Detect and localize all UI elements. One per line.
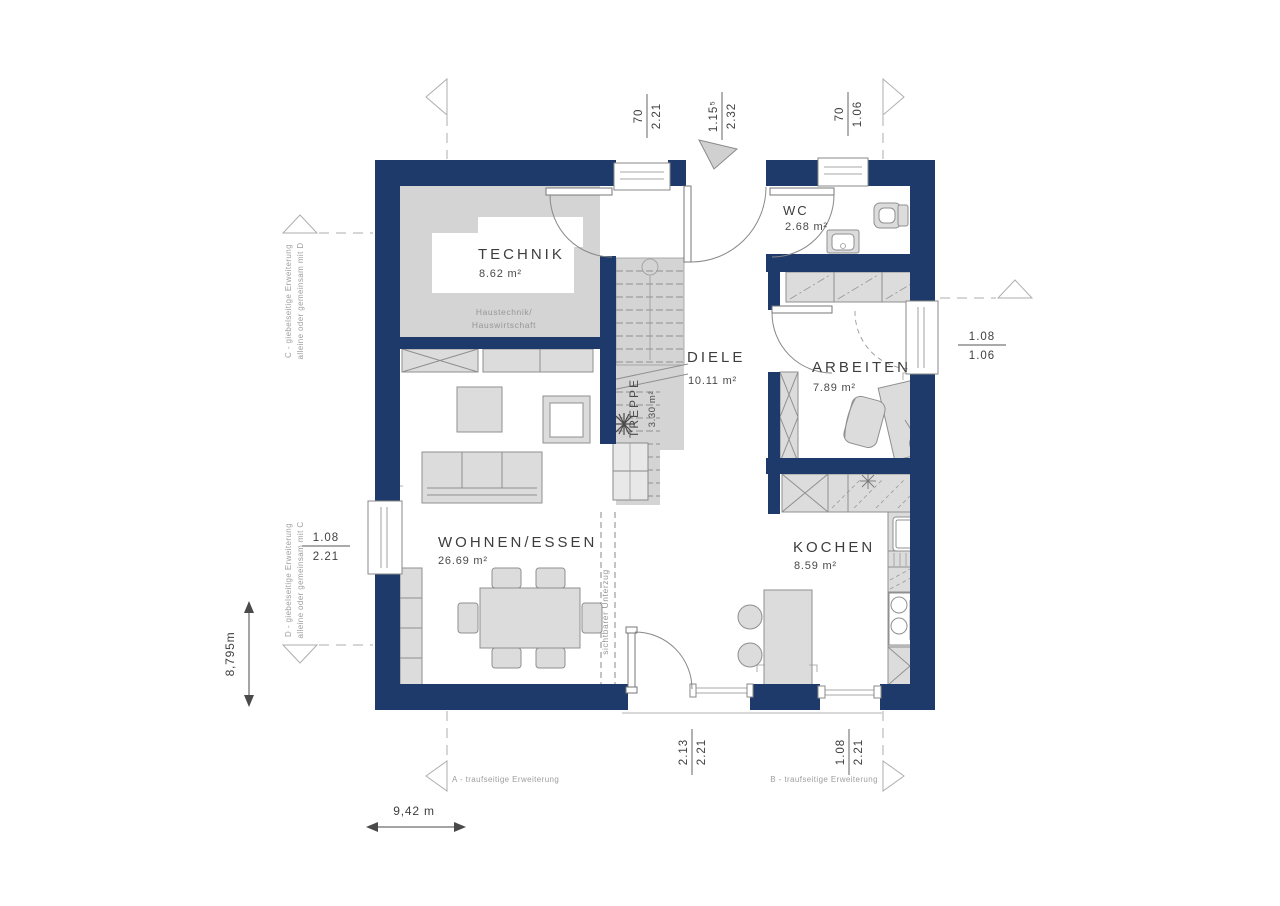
dim-arbeiten-window: 1.08 1.06 bbox=[958, 331, 1006, 362]
room-diele-area: 10.11 m² bbox=[688, 375, 737, 387]
dim-wohnen-window: 1.08 2.21 bbox=[302, 532, 350, 563]
office-chair bbox=[841, 394, 887, 449]
wall-under-wc bbox=[766, 254, 935, 272]
dining-chair bbox=[582, 603, 602, 633]
kitchen-island bbox=[764, 590, 812, 685]
dim-wc-window-den: 1.06 bbox=[852, 101, 864, 127]
room-wc-area: 2.68 m² bbox=[785, 221, 828, 233]
wc-sink bbox=[827, 230, 859, 253]
overall-height-measure: 8,795m bbox=[223, 601, 254, 707]
dim-terrace-door-num: 2.13 bbox=[678, 739, 690, 765]
window-wc bbox=[818, 158, 868, 186]
overall-width-measure: 9,42 m bbox=[366, 804, 466, 832]
extension-arrow-b-top bbox=[883, 79, 904, 115]
entrance-door bbox=[684, 186, 766, 262]
corner-marker bbox=[860, 473, 876, 489]
bar-stool bbox=[738, 605, 762, 629]
hall-wardrobe bbox=[786, 272, 930, 302]
extension-label-d-line2: alleine oder gemeinsam mit C bbox=[296, 521, 305, 638]
dim-wohnen-window-num: 1.08 bbox=[313, 532, 339, 544]
armchair bbox=[543, 396, 590, 443]
dim-kochen-window-den: 2.21 bbox=[853, 739, 865, 765]
room-kochen-area: 8.59 m² bbox=[794, 560, 837, 572]
sideboard bbox=[483, 349, 593, 372]
kitchen-furniture bbox=[738, 473, 932, 685]
extension-arrow-d bbox=[283, 645, 317, 663]
dim-terrace-door: 2.13 2.21 bbox=[678, 729, 708, 775]
dim-top-window-num: 70 bbox=[633, 109, 645, 124]
beam: sichtbarer Unterzug bbox=[600, 512, 615, 684]
dim-wohnen-window-den: 2.21 bbox=[313, 551, 339, 563]
overall-width-label: 9,42 m bbox=[393, 804, 435, 818]
room-wohnen-area: 26.69 m² bbox=[438, 555, 488, 567]
dim-wc-window-num: 70 bbox=[834, 107, 846, 122]
room-technik-note1: Haustechnik/ bbox=[476, 307, 532, 317]
dim-entrance-num: 1.15⁵ bbox=[708, 100, 720, 132]
sofa bbox=[422, 452, 542, 503]
window-kochen bbox=[818, 686, 881, 698]
extension-arrow-a-bottom bbox=[426, 761, 447, 791]
floorplan-svg: A - traufseitige Erweiterung B - traufse… bbox=[0, 0, 1280, 906]
room-kochen-label: KOCHEN bbox=[793, 539, 875, 556]
dining-chair bbox=[492, 568, 521, 588]
floorplan-page: A - traufseitige Erweiterung B - traufse… bbox=[0, 0, 1280, 906]
dining-chair bbox=[536, 648, 565, 668]
dim-entrance: 1.15⁵ 2.32 bbox=[708, 92, 738, 140]
extension-label-c-line1: C - giebelseitige Erweiterung bbox=[284, 244, 293, 358]
dining-set bbox=[458, 568, 602, 668]
wc-fixtures bbox=[827, 203, 908, 253]
extension-label-b: B - traufseitige Erweiterung bbox=[770, 775, 878, 784]
wall-technik-wohnen bbox=[400, 337, 616, 349]
dim-arbeiten-window-num: 1.08 bbox=[969, 331, 995, 343]
room-diele-label: DIELE bbox=[687, 349, 745, 366]
wall-kochen-left bbox=[768, 474, 780, 514]
office-wardrobe bbox=[780, 372, 798, 462]
extension-label-d-line1: D - giebelseitige Erweiterung bbox=[284, 523, 293, 637]
room-wc-label: WC bbox=[783, 203, 809, 218]
extension-line-right bbox=[940, 280, 1032, 298]
extension-arrow-a-top bbox=[426, 79, 447, 115]
extension-arrow-b-bottom bbox=[883, 761, 904, 791]
overall-height-label: 8,795m bbox=[223, 632, 237, 677]
window-terrace-fixed bbox=[690, 684, 753, 697]
room-technik-note2: Hauswirtschaft bbox=[472, 320, 536, 330]
room-technik-label: TECHNIK bbox=[478, 246, 565, 263]
toilet bbox=[874, 203, 908, 228]
wall-arbeiten-kochen bbox=[766, 458, 935, 474]
extension-label-a: A - traufseitige Erweiterung bbox=[452, 775, 559, 784]
extension-arrow-right bbox=[998, 280, 1032, 298]
kitchen-counter-top bbox=[782, 473, 930, 512]
office-furniture bbox=[780, 372, 932, 462]
living-dining-furniture bbox=[395, 349, 602, 688]
dining-table bbox=[480, 588, 580, 648]
room-arbeiten-area: 7.89 m² bbox=[813, 382, 856, 394]
extension-line-c: C - giebelseitige Erweiterung alleine od… bbox=[283, 215, 373, 360]
dim-terrace-door-den: 2.21 bbox=[696, 739, 708, 765]
wall-diele-arbeiten-top bbox=[768, 272, 780, 310]
dim-kochen-window: 1.08 2.21 bbox=[835, 729, 865, 775]
terrace-door bbox=[626, 627, 692, 693]
wall-diele-arbeiten bbox=[768, 372, 780, 458]
room-technik-area: 8.62 m² bbox=[479, 268, 522, 280]
room-wohnen-label: WOHNEN/ESSEN bbox=[438, 534, 597, 551]
room-arbeiten-label: ARBEITEN bbox=[812, 359, 911, 376]
dining-chair bbox=[458, 603, 478, 633]
extension-arrow-c bbox=[283, 215, 317, 233]
room-treppe-area: 3.30 m² bbox=[647, 391, 658, 427]
entrance-arrow-icon bbox=[699, 140, 737, 169]
coffee-table bbox=[457, 387, 502, 432]
dim-top-window: 70 2.21 bbox=[633, 94, 663, 138]
window-wohnen bbox=[368, 501, 402, 574]
dining-chair bbox=[536, 568, 565, 588]
dim-wc-window: 70 1.06 bbox=[834, 92, 864, 136]
dim-kochen-window-num: 1.08 bbox=[835, 739, 847, 765]
window-stair bbox=[614, 163, 670, 190]
wall-diele-technik bbox=[600, 256, 616, 444]
extension-label-c-line2: alleine oder gemeinsam mit D bbox=[296, 242, 305, 359]
dim-entrance-den: 2.32 bbox=[726, 103, 738, 129]
dim-top-window-den: 2.21 bbox=[651, 103, 663, 129]
room-treppe-label: TREPPE bbox=[627, 378, 641, 438]
dim-arbeiten-window-den: 1.06 bbox=[969, 350, 995, 362]
understair-storage bbox=[613, 443, 648, 471]
dining-chair bbox=[492, 648, 521, 668]
bar-stool bbox=[738, 643, 762, 667]
